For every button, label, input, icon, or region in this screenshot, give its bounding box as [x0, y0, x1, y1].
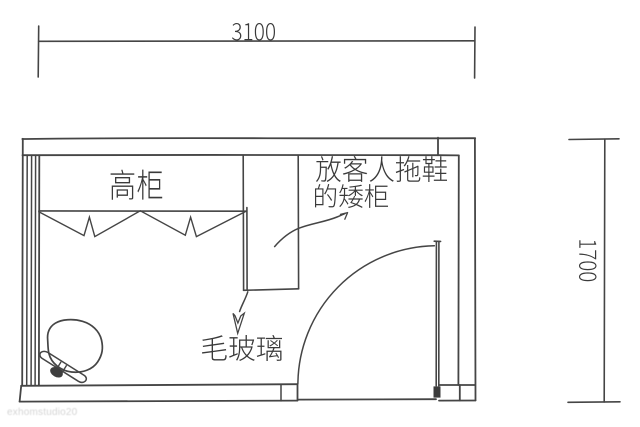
svg-text:exhomstudio20: exhomstudio20 — [7, 407, 78, 418]
